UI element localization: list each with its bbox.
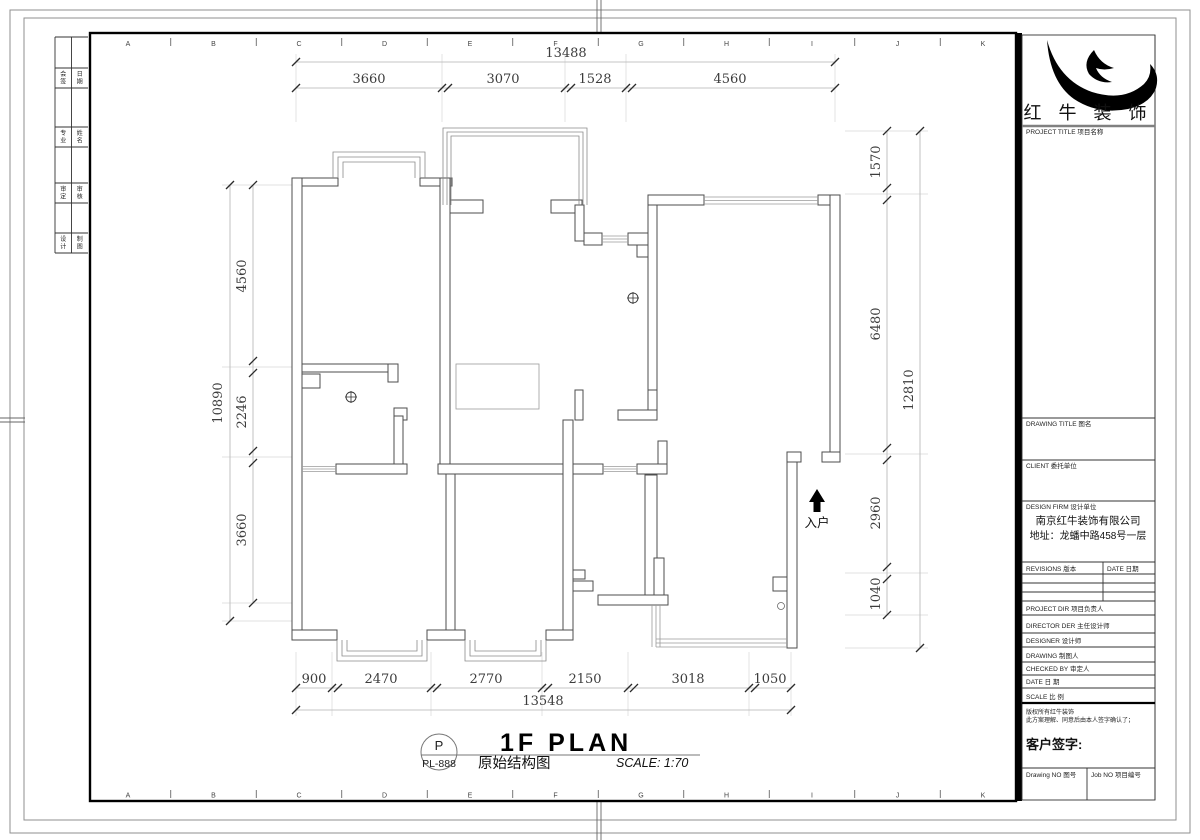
signature-cell-text: 签 xyxy=(60,78,66,86)
signature-cell-text: 名 xyxy=(77,137,83,145)
ruler-letter: B xyxy=(211,793,216,800)
dim-right-2: 2960 xyxy=(869,496,884,529)
dim-top-1: 3070 xyxy=(486,72,519,87)
ruler-bottom: ABCDEFGHIJK xyxy=(126,790,986,800)
dim-left-total: 10890 xyxy=(211,382,226,423)
dim-bottom-3: 2150 xyxy=(568,672,601,687)
signature-cell-text: 制 xyxy=(77,235,83,243)
ruler-letter: D xyxy=(382,41,387,48)
stamp-code: PL-888 xyxy=(422,758,456,770)
dim-top-2: 1528 xyxy=(578,72,611,87)
drain-symbol xyxy=(627,292,639,304)
plan-title-stamp: P PL-888 1F PLAN 原始结构图 SCALE: 1:70 xyxy=(421,729,700,772)
drawing-no-label: Drawing NO 图号 xyxy=(1026,771,1077,779)
ruler-letter: K xyxy=(981,41,986,48)
entry-arrow-icon xyxy=(809,489,825,512)
company-name: 南京红牛装饰有限公司 xyxy=(1036,514,1141,527)
client-label: CLIENT 委托单位 xyxy=(1026,461,1077,470)
project-title-label: PROJECT TITLE 项目名称 xyxy=(1026,127,1104,136)
job-no-label: Job NO 项目编号 xyxy=(1091,770,1141,779)
signature-cell-text: 专 xyxy=(60,129,66,137)
ruler-letter: A xyxy=(126,793,131,800)
dim-bottom-5: 1050 xyxy=(753,672,786,687)
revisions-table: REVISIONS 版本 DATE 日期 xyxy=(1022,562,1155,601)
dim-right-0: 1570 xyxy=(869,145,884,178)
dim-right-3: 1040 xyxy=(869,577,884,610)
plan-title: 1F PLAN xyxy=(500,729,632,757)
checked-by-label: CHECKED BY 审定人 xyxy=(1026,664,1090,673)
signature-cell-text: 计 xyxy=(60,243,66,251)
date-col-label: DATE 日期 xyxy=(1107,565,1139,573)
dim-bottom-0: 900 xyxy=(302,672,327,687)
ruler-letter: C xyxy=(296,793,301,800)
dim-left-2: 3660 xyxy=(235,513,250,546)
drain-symbol xyxy=(345,391,357,403)
signature-cell-text: 审 xyxy=(77,185,83,193)
scale-row-label: SCALE 比 例 xyxy=(1026,692,1064,701)
ruler-letter: G xyxy=(638,41,643,48)
dim-bottom-2: 2770 xyxy=(469,672,502,687)
signature-cell-text: 设 xyxy=(60,235,66,243)
ruler-letter: A xyxy=(126,41,131,48)
signature-box: 版权所有红牛装饰 此方案理解、同意后由本人签字确认了； 客户签字: Drawin… xyxy=(1022,708,1155,800)
plan-symbols: 入户 xyxy=(345,292,830,610)
signature-cell-text: 期 xyxy=(77,78,83,86)
drawing-sheet: 会签日期专业姓名审定审核设计制图 ABCDEFGHIJK ABCDEFGHIJK… xyxy=(0,0,1200,840)
bottom-dimension-chain: 900 2470 2770 2150 3018 1050 13548 xyxy=(292,672,795,714)
dim-bottom-total: 13548 xyxy=(522,694,563,709)
dim-right-1: 6480 xyxy=(869,307,884,340)
ruler-letter: D xyxy=(382,793,387,800)
entry-label: 入户 xyxy=(804,515,829,530)
extension-lines xyxy=(222,54,928,716)
brand-name: 红 牛 装 饰 xyxy=(1023,103,1152,123)
ruler-letter: H xyxy=(724,41,729,48)
dim-top-3: 4560 xyxy=(713,72,746,87)
ruler-letter: K xyxy=(981,793,986,800)
signature-cell-text: 图 xyxy=(77,244,83,251)
ruler-letter: H xyxy=(724,793,729,800)
page-borders xyxy=(10,10,1190,833)
plan-scale: SCALE: 1:70 xyxy=(616,756,688,770)
signature-cell-text: 核 xyxy=(77,193,83,201)
signature-cell-text: 会 xyxy=(60,70,66,78)
signature-cell-text: 定 xyxy=(60,193,66,201)
signature-strip: 会签日期专业姓名审定审核设计制图 xyxy=(55,37,88,253)
ruler-letter: F xyxy=(553,793,557,800)
dim-left-0: 4560 xyxy=(235,259,250,292)
left-dimension-chain: 10890 4560 2246 3660 xyxy=(211,181,257,625)
plan-subtitle: 原始结构图 xyxy=(478,755,551,772)
ruler-letter: E xyxy=(468,793,473,800)
ruler-letter: I xyxy=(811,41,813,48)
company-address: 地址：龙蟠中路458号一层 xyxy=(1030,529,1147,542)
drawing-title-label: DRAWING TITLE 图名 xyxy=(1026,419,1091,428)
signature-cell-text: 姓 xyxy=(77,129,83,137)
design-firm-label: DESIGN FIRM 设计单位 xyxy=(1026,502,1097,511)
ruler-letter: B xyxy=(211,41,216,48)
signature-cell-text: 业 xyxy=(60,137,66,145)
brand-logo-icon xyxy=(1047,40,1157,111)
signature-cell-text: 审 xyxy=(60,185,66,193)
stamp-letter: P xyxy=(435,738,444,753)
top-dimension-chain: 13488 3660 3070 1528 4560 xyxy=(292,46,839,92)
director-label: DIRECTOR DER 主任设计师 xyxy=(1026,621,1110,630)
signature-cell-text: 日 xyxy=(77,71,83,78)
ruler-letter: G xyxy=(638,793,643,800)
ruler-letter: C xyxy=(296,41,301,48)
ruler-letter: E xyxy=(468,41,473,48)
small-circle-symbol xyxy=(778,603,785,610)
title-block-bar xyxy=(1015,33,1022,801)
dim-bottom-4: 3018 xyxy=(671,672,704,687)
dim-top-total: 13488 xyxy=(545,46,586,61)
ruler-letter: I xyxy=(811,793,813,800)
copyright-notice-2: 此方案理解、同意后由本人签字确认了； xyxy=(1026,716,1134,724)
ruler-letter: J xyxy=(896,41,900,48)
dim-left-1: 2246 xyxy=(235,395,250,428)
date-row-label: DATE 日 期 xyxy=(1026,678,1060,686)
designer-label: DESIGNER 设计师 xyxy=(1026,636,1082,645)
ruler-letter: J xyxy=(896,793,900,800)
client-signature-label: 客户签字: xyxy=(1026,737,1082,752)
sheet-svg: 会签日期专业姓名审定审核设计制图 ABCDEFGHIJK ABCDEFGHIJK… xyxy=(0,0,1200,840)
dim-right-total: 12810 xyxy=(902,369,917,410)
project-dir-label: PROJECT DIR 项目负责人 xyxy=(1026,604,1104,613)
title-block: 红 牛 装 饰 PROJECT TITLE 项目名称 DRAWING TITLE… xyxy=(1015,33,1157,801)
revisions-label: REVISIONS 版本 xyxy=(1026,564,1077,573)
floor-plan-walls xyxy=(292,178,840,648)
dim-bottom-1: 2470 xyxy=(364,672,397,687)
staff-rows: PROJECT DIR 项目负责人 DIRECTOR DER 主任设计师 DES… xyxy=(1022,604,1155,703)
copyright-notice-1: 版权所有红牛装饰 xyxy=(1026,708,1074,716)
drawing-by-label: DRAWING 制图人 xyxy=(1026,651,1079,660)
dim-top-0: 3660 xyxy=(352,72,385,87)
